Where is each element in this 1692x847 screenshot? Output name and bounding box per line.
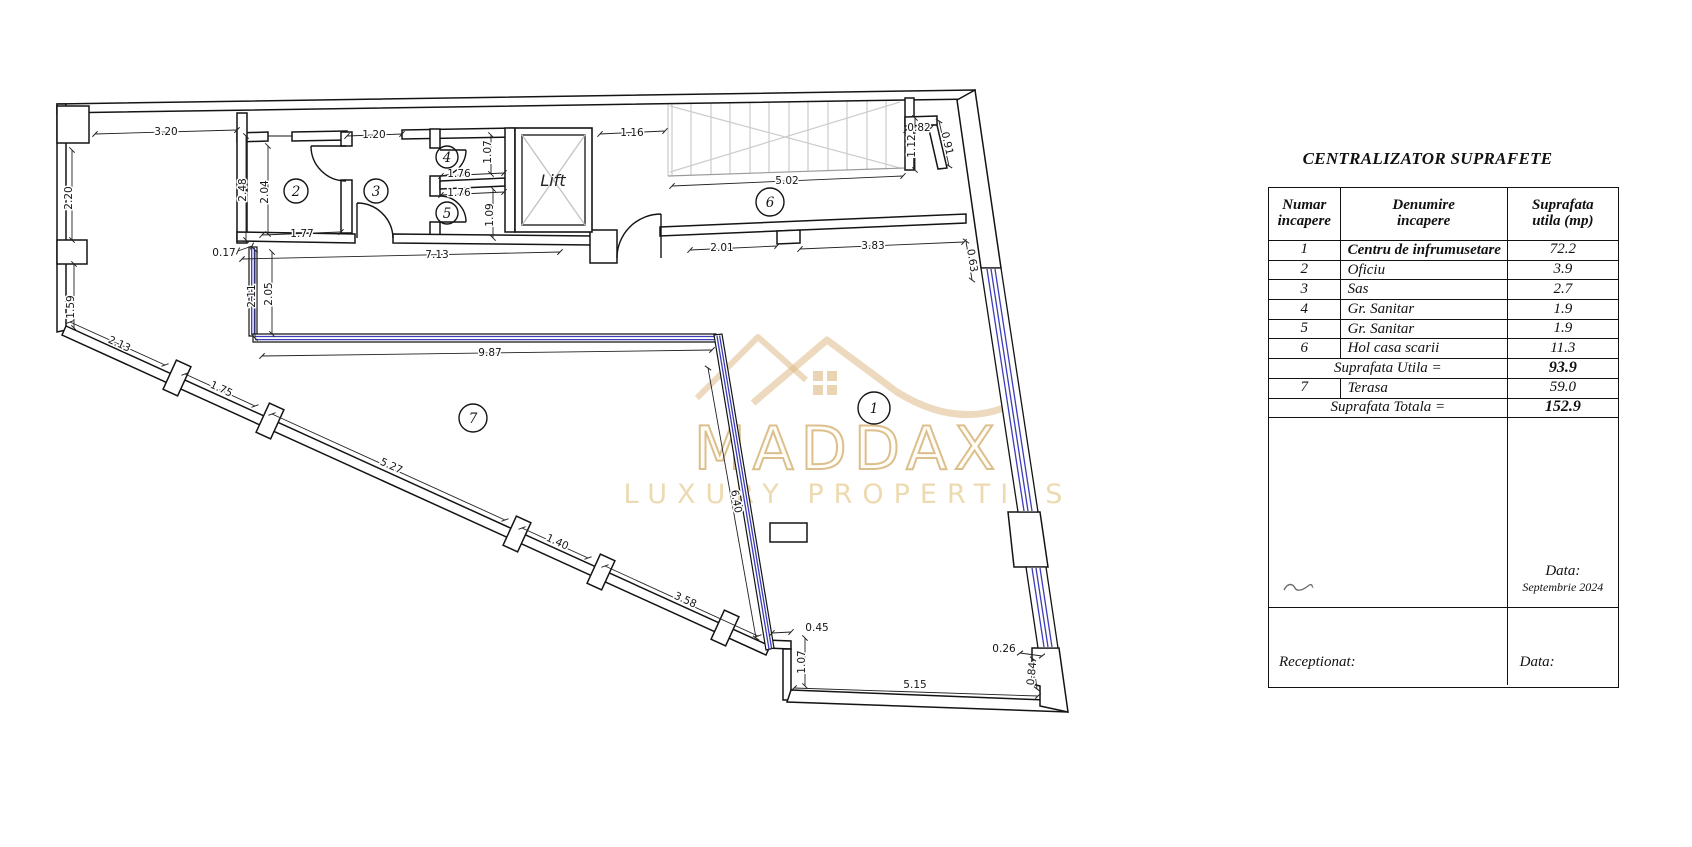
subtotal-label: Suprafata Utila =: [1269, 359, 1507, 378]
dim-label: 0.17: [212, 247, 235, 259]
lift-label: Lift: [540, 171, 566, 190]
dim-label: 2.04: [259, 180, 271, 204]
room-number-4: 4: [442, 150, 452, 166]
total-row: Suprafata Totala = 152.9: [1269, 398, 1618, 418]
room-number-3: 3: [372, 184, 381, 200]
dim-label: 1.76: [447, 168, 471, 180]
signature-section: Data: Septembrie 2024: [1269, 417, 1618, 607]
table-title: CENTRALIZATOR SUPRAFETE: [1252, 149, 1603, 169]
signature-scribble: [1281, 579, 1315, 595]
reception-section: Receptionat: Data:: [1269, 607, 1618, 685]
date-cell: Data: Septembrie 2024: [1507, 418, 1618, 607]
dim-label: 5.15: [903, 679, 926, 691]
header-numar: Numarincapere: [1269, 188, 1340, 240]
dim-label: 0.63: [964, 248, 980, 273]
dim-label: 0.84: [1025, 661, 1039, 686]
watermark-subtitle: LUXURY PROPERTIES: [624, 479, 1073, 510]
table-row: 5 Gr. Sanitar 1.9: [1269, 319, 1618, 339]
table-row: 3 Sas 2.7: [1269, 279, 1618, 299]
watermark-windows-icon: [813, 371, 837, 395]
room-number-1: 1: [870, 401, 879, 417]
total-label: Suprafata Totala =: [1269, 399, 1507, 418]
wall-top: [57, 90, 975, 113]
dim-label: 1.12: [906, 134, 918, 157]
total-value: 152.9: [1507, 399, 1618, 418]
bottom-date-cell: Data:: [1507, 608, 1618, 685]
receptionat-cell: Receptionat:: [1269, 608, 1507, 685]
dim-label: 9.87: [478, 347, 501, 359]
dim-label: 2.20: [63, 186, 75, 209]
room-number-7: 7: [469, 411, 478, 427]
table-row: 4 Gr. Sanitar 1.9: [1269, 299, 1618, 319]
floor-plan-page: MADDAX LUXURY PROPERTIES: [0, 0, 1692, 847]
lift-shaft: Lift: [515, 128, 592, 232]
dim-label: 0.26: [992, 643, 1016, 655]
table-header-row: Numarincapere Denumireincapere Suprafata…: [1269, 188, 1618, 240]
dim-label: 7.13: [425, 249, 448, 261]
dim-label: 1.07: [482, 140, 494, 163]
dim-label: 1.09: [484, 203, 496, 226]
header-suprafata: Suprafatautila (mp): [1507, 188, 1618, 240]
table-row: 6 Hol casa scarii 11.3: [1269, 338, 1618, 358]
signature-area: [1269, 418, 1507, 607]
subtotal-value: 93.9: [1507, 359, 1618, 378]
dim-label: 1.77: [290, 228, 313, 240]
wall-right-upper: [957, 90, 1001, 268]
watermark-roof-swoosh-icon: [753, 340, 1013, 415]
stairs: [668, 97, 905, 176]
wall-bottom: [787, 690, 1068, 712]
room-number-6: 6: [766, 195, 775, 211]
room-number-5: 5: [443, 206, 452, 222]
dim-label: 1.20: [362, 129, 385, 141]
table-row: 1 Centru de infrumusetare 72.2: [1269, 240, 1618, 260]
dim-label: 1.16: [620, 127, 644, 139]
wall-block-left: [57, 240, 87, 264]
dim-label: 2.48: [237, 178, 249, 201]
dim-label: 0.45: [805, 622, 828, 634]
wall-right-block: [1008, 512, 1048, 567]
header-denumire: Denumireincapere: [1340, 188, 1507, 240]
table-row: 2 Oficiu 3.9: [1269, 260, 1618, 280]
table-row: 7 Terasa 59.0: [1269, 378, 1618, 398]
wall-block-topleft: [57, 106, 89, 143]
dim-label: 1.59: [65, 295, 77, 318]
dim-label: 1.76: [447, 187, 471, 199]
dim-label: 1.07: [796, 650, 808, 673]
date-value: Septembrie 2024: [1522, 580, 1603, 595]
date-label: Data:: [1545, 563, 1580, 580]
subtotal-row: Suprafata Utila = 93.9: [1269, 358, 1618, 378]
dim-label: 3.20: [154, 126, 177, 138]
room-number-2: 2: [291, 184, 301, 200]
areas-table: Numarincapere Denumireincapere Suprafata…: [1268, 187, 1619, 688]
dim-label: 2.01: [710, 242, 733, 254]
desk: [770, 523, 807, 542]
dim-label: 5.02: [775, 175, 798, 187]
dim-label: 0.82: [907, 122, 930, 134]
dim-label: 2.05: [263, 282, 275, 305]
dim-label: 2.11: [246, 284, 258, 307]
dim-label: 3.83: [861, 240, 884, 252]
